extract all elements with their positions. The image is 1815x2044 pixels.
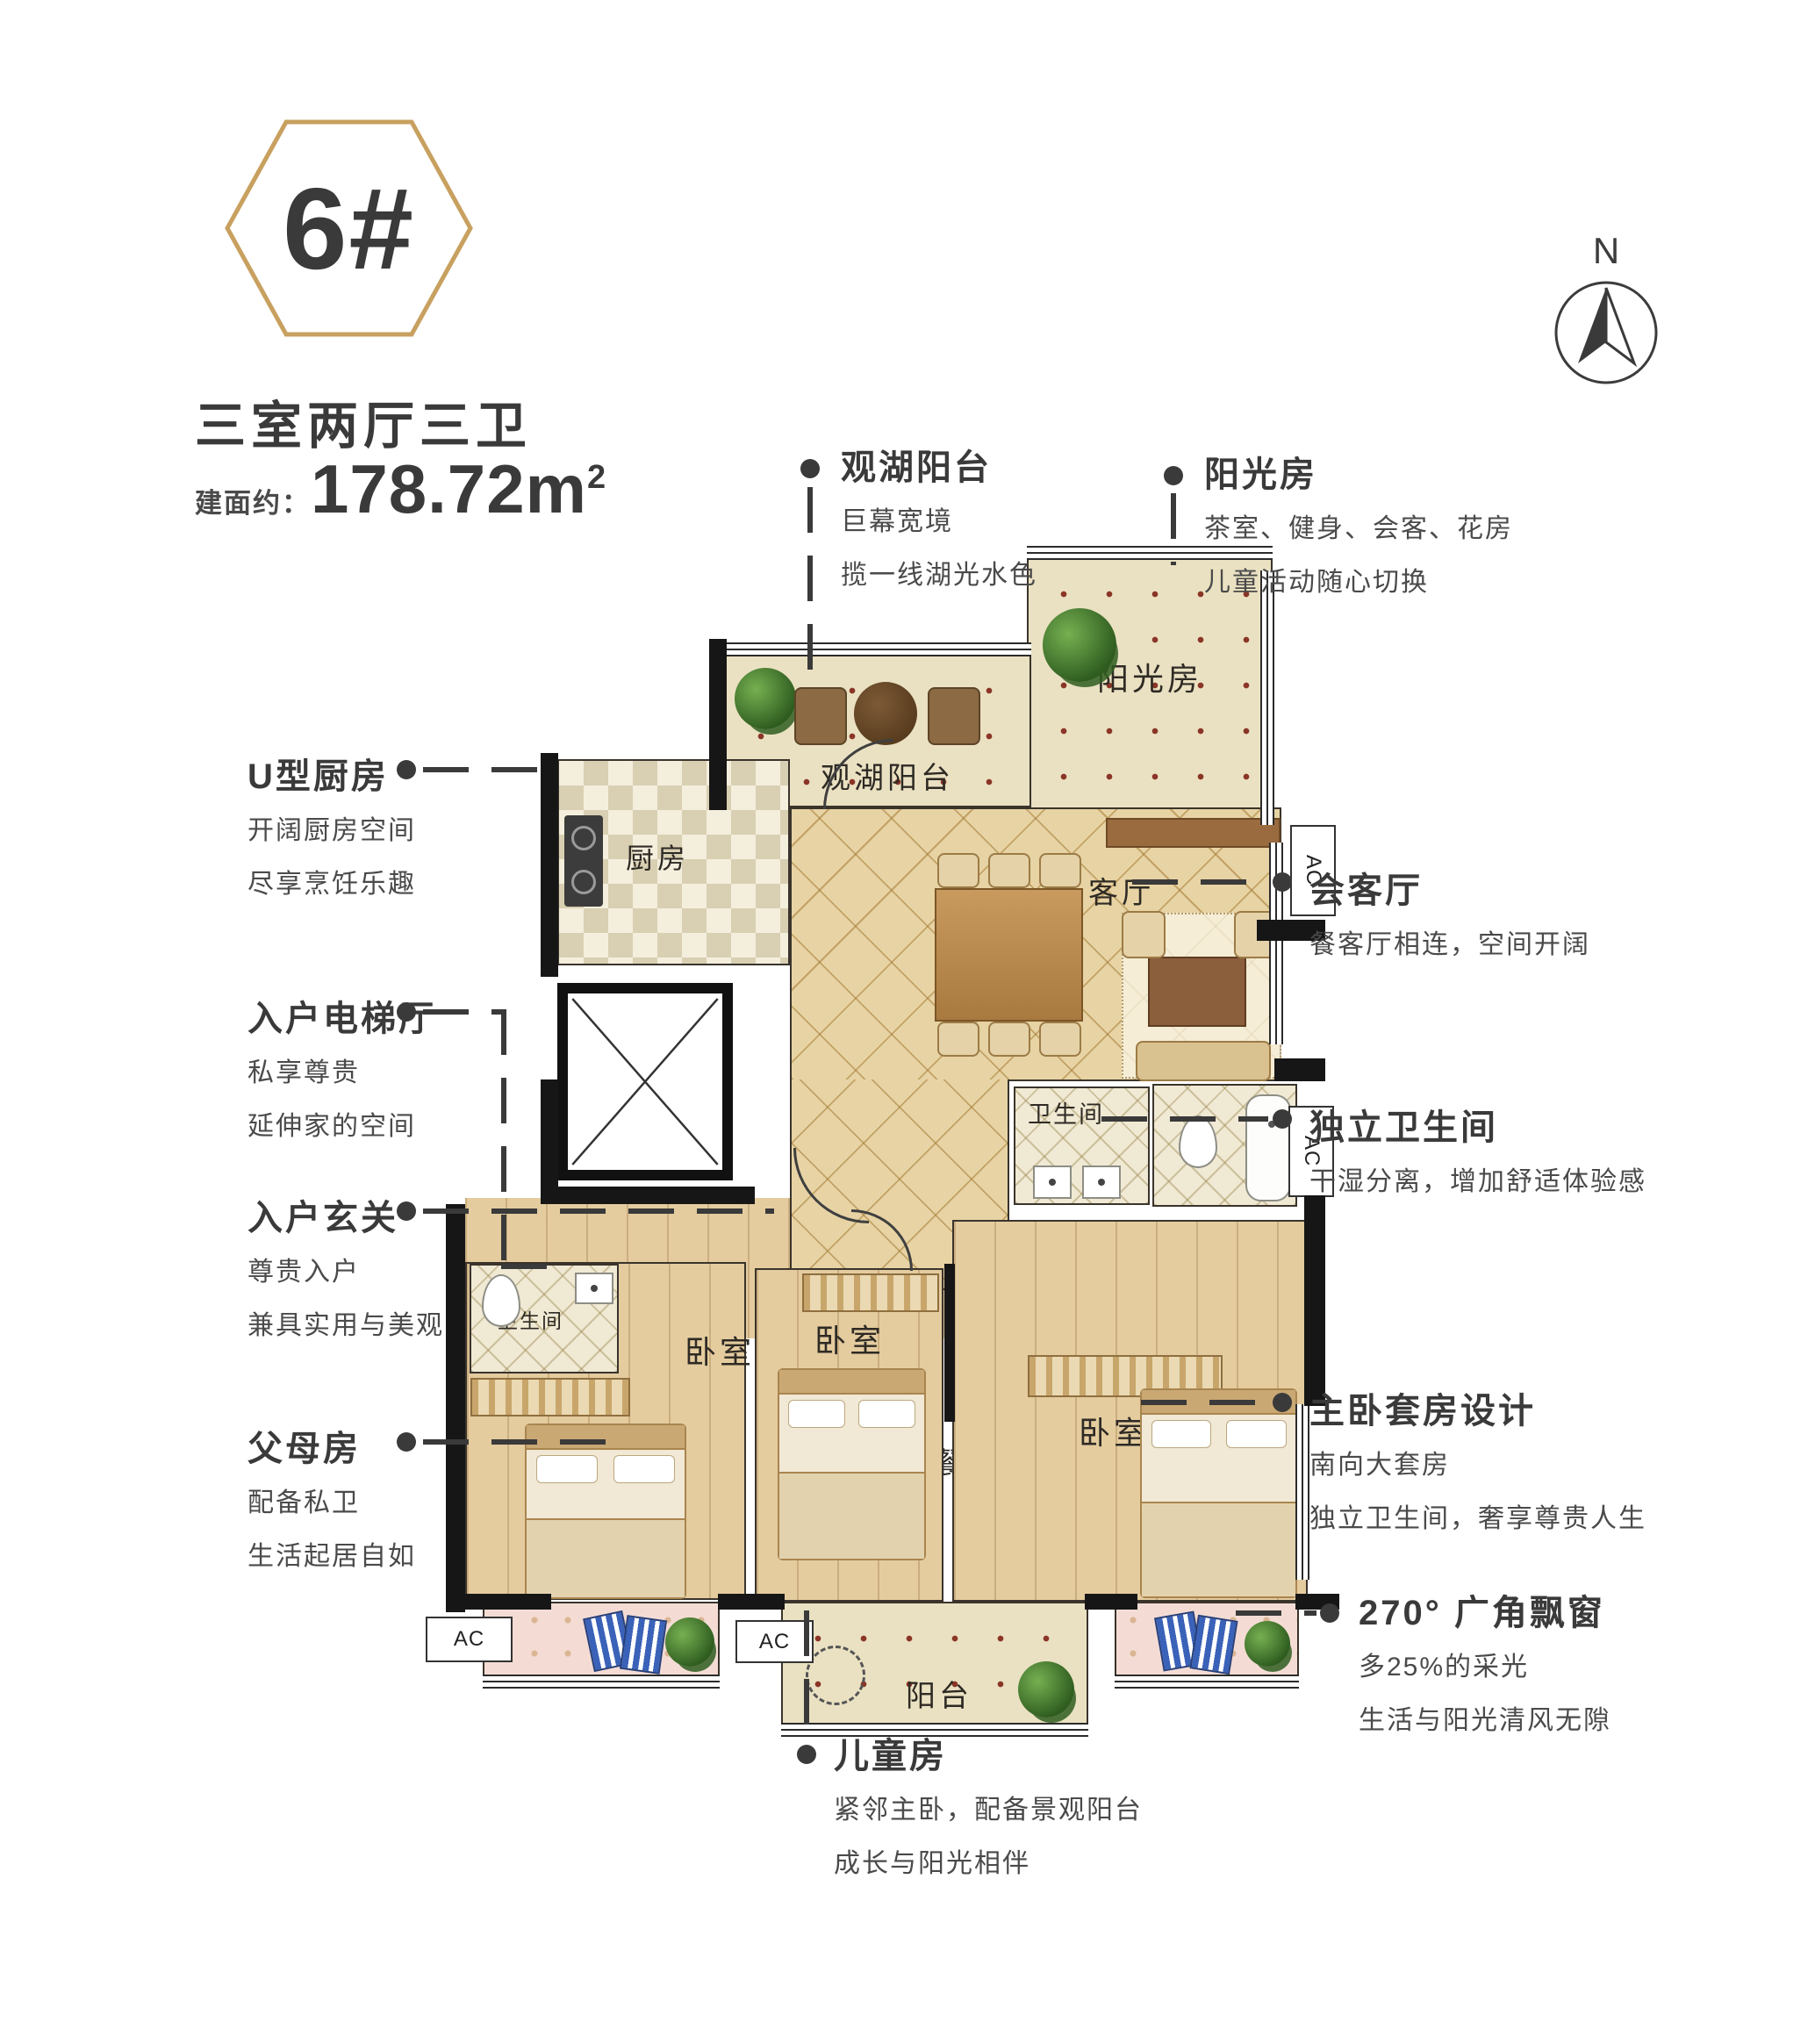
floorplan-poster: 6# 三室两厅三卫 建面约： 178.72m 2 N 阳光房 xyxy=(0,0,1815,2044)
wall-segment xyxy=(1085,1594,1137,1610)
cooktop-icon xyxy=(564,815,603,907)
room-bathroom-label: 卫生间 xyxy=(1028,1095,1104,1130)
annotation-desc: 尽享烹饪乐趣 xyxy=(247,864,416,906)
annotation-desc: 配备私卫 xyxy=(247,1483,416,1524)
dining-chair xyxy=(937,1022,979,1057)
area-line: 建面约： 178.72m 2 xyxy=(195,449,606,529)
annotation-title: 儿童房 xyxy=(834,1727,1143,1778)
annotation-desc: 干湿分离，增加舒适体验感 xyxy=(1309,1162,1646,1203)
wall-segment xyxy=(1304,1195,1325,1406)
leader-line-master xyxy=(1141,1400,1268,1405)
window xyxy=(1115,1675,1299,1689)
annotation-title: 270° 广角飘窗 xyxy=(1359,1584,1611,1635)
room-balcony-label: 阳台 xyxy=(906,1672,972,1715)
annotation-desc: 巨幕宽境 xyxy=(841,502,1037,543)
leader-line-sunroom xyxy=(1171,493,1176,565)
balcony-chair xyxy=(928,687,980,745)
annotation-desc: 紧邻主卧，配备景观阳台 xyxy=(834,1790,1143,1832)
wall-segment xyxy=(1274,1058,1325,1081)
leader-bullet xyxy=(397,1201,416,1221)
bed xyxy=(525,1424,686,1599)
annotation-desc: 南向大套房 xyxy=(1309,1445,1646,1487)
ac-unit-label: AC xyxy=(426,1617,513,1662)
plant-icon xyxy=(1018,1661,1074,1718)
wardrobe xyxy=(470,1378,630,1416)
annotation-desc: 尊贵入户 xyxy=(247,1252,444,1294)
leader-bullet xyxy=(1164,466,1183,485)
annotation-title: 观湖阳台 xyxy=(841,439,1037,490)
wall-segment xyxy=(718,1594,785,1610)
toilet-icon xyxy=(1179,1115,1217,1168)
toilet-icon xyxy=(482,1274,520,1327)
leader-bullet xyxy=(1273,872,1292,892)
dining-table xyxy=(935,888,1083,1022)
annotation-desc: 多25%的采光 xyxy=(1359,1647,1611,1689)
leader-bullet xyxy=(800,459,820,478)
area-prefix: 建面约： xyxy=(195,481,311,520)
room-bathroom-shared: 卫生间 xyxy=(1014,1087,1150,1205)
leader-bullet xyxy=(397,1432,416,1452)
compass: N xyxy=(1550,230,1662,391)
dining-chair xyxy=(988,853,1030,888)
leader-bullet xyxy=(797,1745,816,1764)
leader-line-reception xyxy=(1132,879,1268,885)
annotation-title: 阳光房 xyxy=(1204,446,1513,497)
dining-chair xyxy=(1039,853,1081,888)
tv-cabinet xyxy=(1106,818,1281,848)
bed xyxy=(778,1368,926,1560)
building-number: 6# xyxy=(224,118,474,338)
plant-icon xyxy=(1043,608,1116,682)
round-table xyxy=(854,682,917,745)
annotation-desc: 餐客厅相连，空间开阔 xyxy=(1309,925,1590,966)
plant-icon xyxy=(1245,1621,1290,1667)
plant-icon xyxy=(735,668,796,729)
leader-line-elevator xyxy=(423,1009,506,1015)
wall-segment xyxy=(709,639,727,810)
room-bedroom-child: 卧室 xyxy=(755,1268,943,1602)
room-bathroom-parents: 卫生间 xyxy=(470,1264,619,1373)
dining-chair xyxy=(988,1022,1030,1057)
dining-chair xyxy=(937,853,979,888)
annotation-desc: 独立卫生间，奢享尊贵人生 xyxy=(1309,1499,1646,1540)
floor-plan: 阳光房 观湖阳台 厨房 餐厅 客厅 xyxy=(412,544,1413,1729)
room-bedroom-label: 卧室 xyxy=(685,1327,755,1373)
leader-bullet xyxy=(1273,1393,1292,1412)
wall-segment xyxy=(541,753,558,977)
annotation-title: 独立卫生间 xyxy=(1309,1099,1646,1150)
room-bedroom-label: 卧室 xyxy=(1079,1408,1149,1453)
leader-line-elevator xyxy=(501,1264,564,1269)
sink-icon xyxy=(1033,1165,1072,1199)
area-value: 178.72m xyxy=(311,449,587,529)
window xyxy=(1260,570,1274,825)
window xyxy=(1295,1404,1309,1580)
leader-line-foyer xyxy=(423,1208,774,1214)
wall-segment xyxy=(944,1264,955,1422)
annotation-parents: 父母房 配备私卫 生活起居自如 xyxy=(247,1420,416,1577)
sofa xyxy=(1136,1041,1271,1081)
dining-chair xyxy=(1039,1022,1081,1057)
wall-segment xyxy=(446,1204,465,1612)
room-bedroom-label: 卧室 xyxy=(814,1316,885,1361)
wall-segment xyxy=(446,1594,551,1610)
leader-line-bay-window xyxy=(1236,1610,1316,1616)
armchair xyxy=(1122,911,1166,958)
annotation-desc: 揽一线湖光水色 xyxy=(841,556,1037,597)
leader-line-children xyxy=(804,1610,809,1742)
leader-line-kitchen xyxy=(423,767,559,772)
leader-bullet xyxy=(397,1002,416,1022)
ac-unit-label: AC xyxy=(735,1620,814,1663)
room-kitchen-label: 厨房 xyxy=(626,836,689,877)
annotation-title: 父母房 xyxy=(247,1420,416,1471)
balcony-chair xyxy=(794,687,847,745)
wardrobe xyxy=(802,1273,939,1312)
sink-icon xyxy=(575,1273,613,1304)
small-table-dashed xyxy=(806,1646,865,1705)
annotation-desc: 私享尊贵 xyxy=(247,1053,436,1094)
plant-icon xyxy=(665,1617,714,1667)
bed xyxy=(1140,1388,1297,1598)
room-bedroom-master: 卧室 xyxy=(952,1220,1308,1602)
leader-line-lake-balcony xyxy=(807,487,813,687)
wall-segment xyxy=(541,1187,755,1204)
elevator xyxy=(557,983,733,1180)
annotation-desc: 延伸家的空间 xyxy=(247,1107,436,1148)
leader-line-independent-bath xyxy=(1101,1116,1268,1122)
annotation-title: 主卧套房设计 xyxy=(1309,1382,1646,1433)
building-badge: 6# xyxy=(224,118,474,338)
window xyxy=(724,642,1031,656)
leader-bullet xyxy=(1320,1603,1339,1623)
room-bathroom-independent xyxy=(1152,1084,1297,1207)
annotation-desc: 生活与阳光清风无隙 xyxy=(1359,1701,1611,1742)
leader-bullet xyxy=(397,760,416,779)
annotation-lake-balcony: 观湖阳台 巨幕宽境 揽一线湖光水色 xyxy=(841,439,1037,596)
annotation-sunroom: 阳光房 茶室、健身、会客、花房 儿童活动随心切换 xyxy=(1204,446,1513,603)
annotation-independent-bath: 独立卫生间 干湿分离，增加舒适体验感 xyxy=(1309,1099,1646,1203)
annotation-children: 儿童房 紧邻主卧，配备景观阳台 成长与阳光相伴 xyxy=(834,1727,1143,1884)
leader-line-elevator xyxy=(501,1009,506,1268)
annotation-reception: 会客厅 餐客厅相连，空间开阔 xyxy=(1309,862,1590,966)
layout-title: 三室两厅三卫 xyxy=(195,384,532,458)
annotation-desc: 开阔厨房空间 xyxy=(247,811,416,852)
area-superscript: 2 xyxy=(587,459,606,497)
room-balcony: 阳台 xyxy=(781,1602,1088,1729)
compass-icon xyxy=(1553,279,1660,386)
room-kitchen: 厨房 xyxy=(557,759,790,965)
annotation-bay-window: 270° 广角飘窗 多25%的采光 生活与阳光清风无隙 xyxy=(1359,1584,1611,1741)
leader-bullet xyxy=(1273,1109,1292,1129)
wall-segment xyxy=(541,1079,558,1192)
room-living-label: 客厅 xyxy=(1088,869,1155,912)
coffee-table xyxy=(1148,957,1246,1027)
sink-icon xyxy=(1082,1165,1121,1199)
annotation-title: U型厨房 xyxy=(247,748,416,799)
bay-window-left xyxy=(483,1602,720,1681)
annotation-desc: 生活起居自如 xyxy=(247,1537,416,1578)
leader-line-parents xyxy=(423,1439,614,1445)
annotation-desc: 儿童活动随心切换 xyxy=(1204,563,1513,604)
annotation-master: 主卧套房设计 南向大套房 独立卫生间，奢享尊贵人生 xyxy=(1309,1382,1646,1539)
window xyxy=(483,1675,720,1689)
towel-icon xyxy=(1189,1615,1237,1675)
annotation-title: 会客厅 xyxy=(1309,862,1590,913)
north-label: N xyxy=(1550,230,1662,272)
towel-icon xyxy=(620,1615,667,1675)
annotation-desc: 成长与阳光相伴 xyxy=(834,1844,1143,1885)
annotation-desc: 茶室、健身、会客、花房 xyxy=(1204,509,1513,550)
annotation-kitchen: U型厨房 开阔厨房空间 尽享烹饪乐趣 xyxy=(247,748,416,905)
annotation-desc: 兼具实用与美观 xyxy=(247,1306,444,1347)
elevator-x-icon xyxy=(568,993,722,1170)
